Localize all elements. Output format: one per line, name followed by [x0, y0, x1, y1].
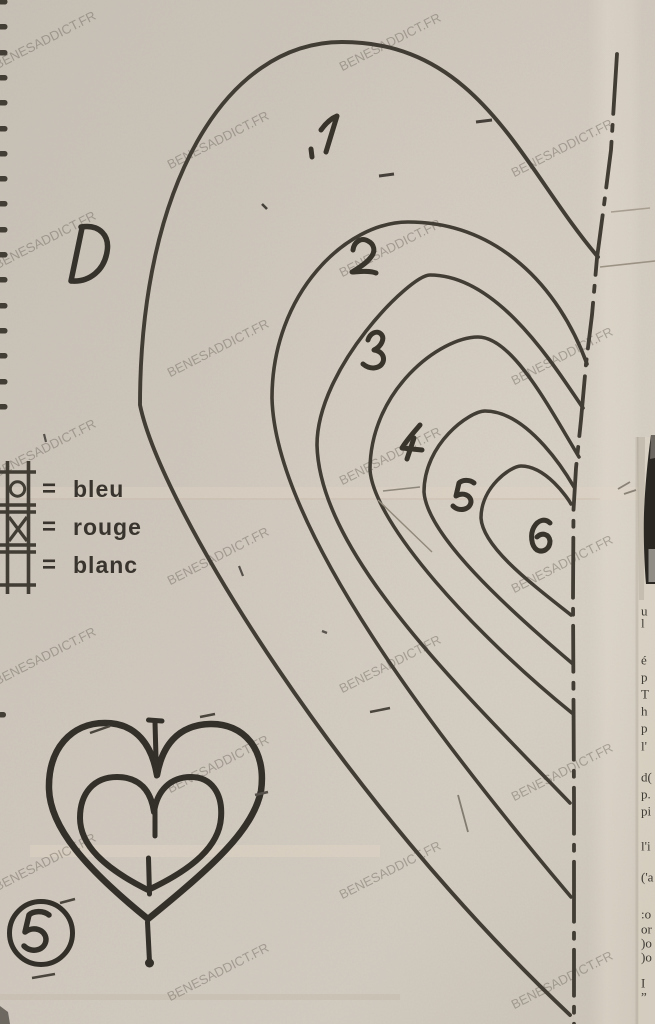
svg-text:p.: p. — [641, 787, 651, 802]
svg-text:”: ” — [641, 990, 647, 1005]
svg-text:or: or — [641, 922, 653, 937]
svg-text:bleu: bleu — [73, 476, 124, 502]
svg-text:é: é — [641, 653, 647, 668]
svg-text:h: h — [641, 704, 648, 719]
svg-text:l': l' — [641, 739, 647, 754]
svg-text:l'i: l'i — [641, 839, 651, 854]
svg-text:=: = — [42, 552, 56, 579]
svg-text:)o: )o — [641, 936, 652, 951]
svg-text:p: p — [641, 721, 648, 736]
svg-text:('a: ('a — [641, 870, 654, 885]
svg-text::o: :o — [641, 907, 651, 922]
svg-text:=: = — [42, 514, 56, 541]
svg-text:p: p — [641, 670, 648, 685]
svg-text:)o: )o — [641, 950, 652, 965]
svg-text:I: I — [641, 976, 645, 991]
svg-text:rouge: rouge — [73, 514, 142, 540]
svg-text:l: l — [641, 616, 645, 631]
svg-text:pi: pi — [641, 804, 652, 819]
svg-text:T: T — [641, 687, 649, 702]
svg-text:d(: d( — [641, 770, 652, 785]
svg-text:blanc: blanc — [73, 552, 138, 578]
svg-text:=: = — [42, 476, 56, 503]
